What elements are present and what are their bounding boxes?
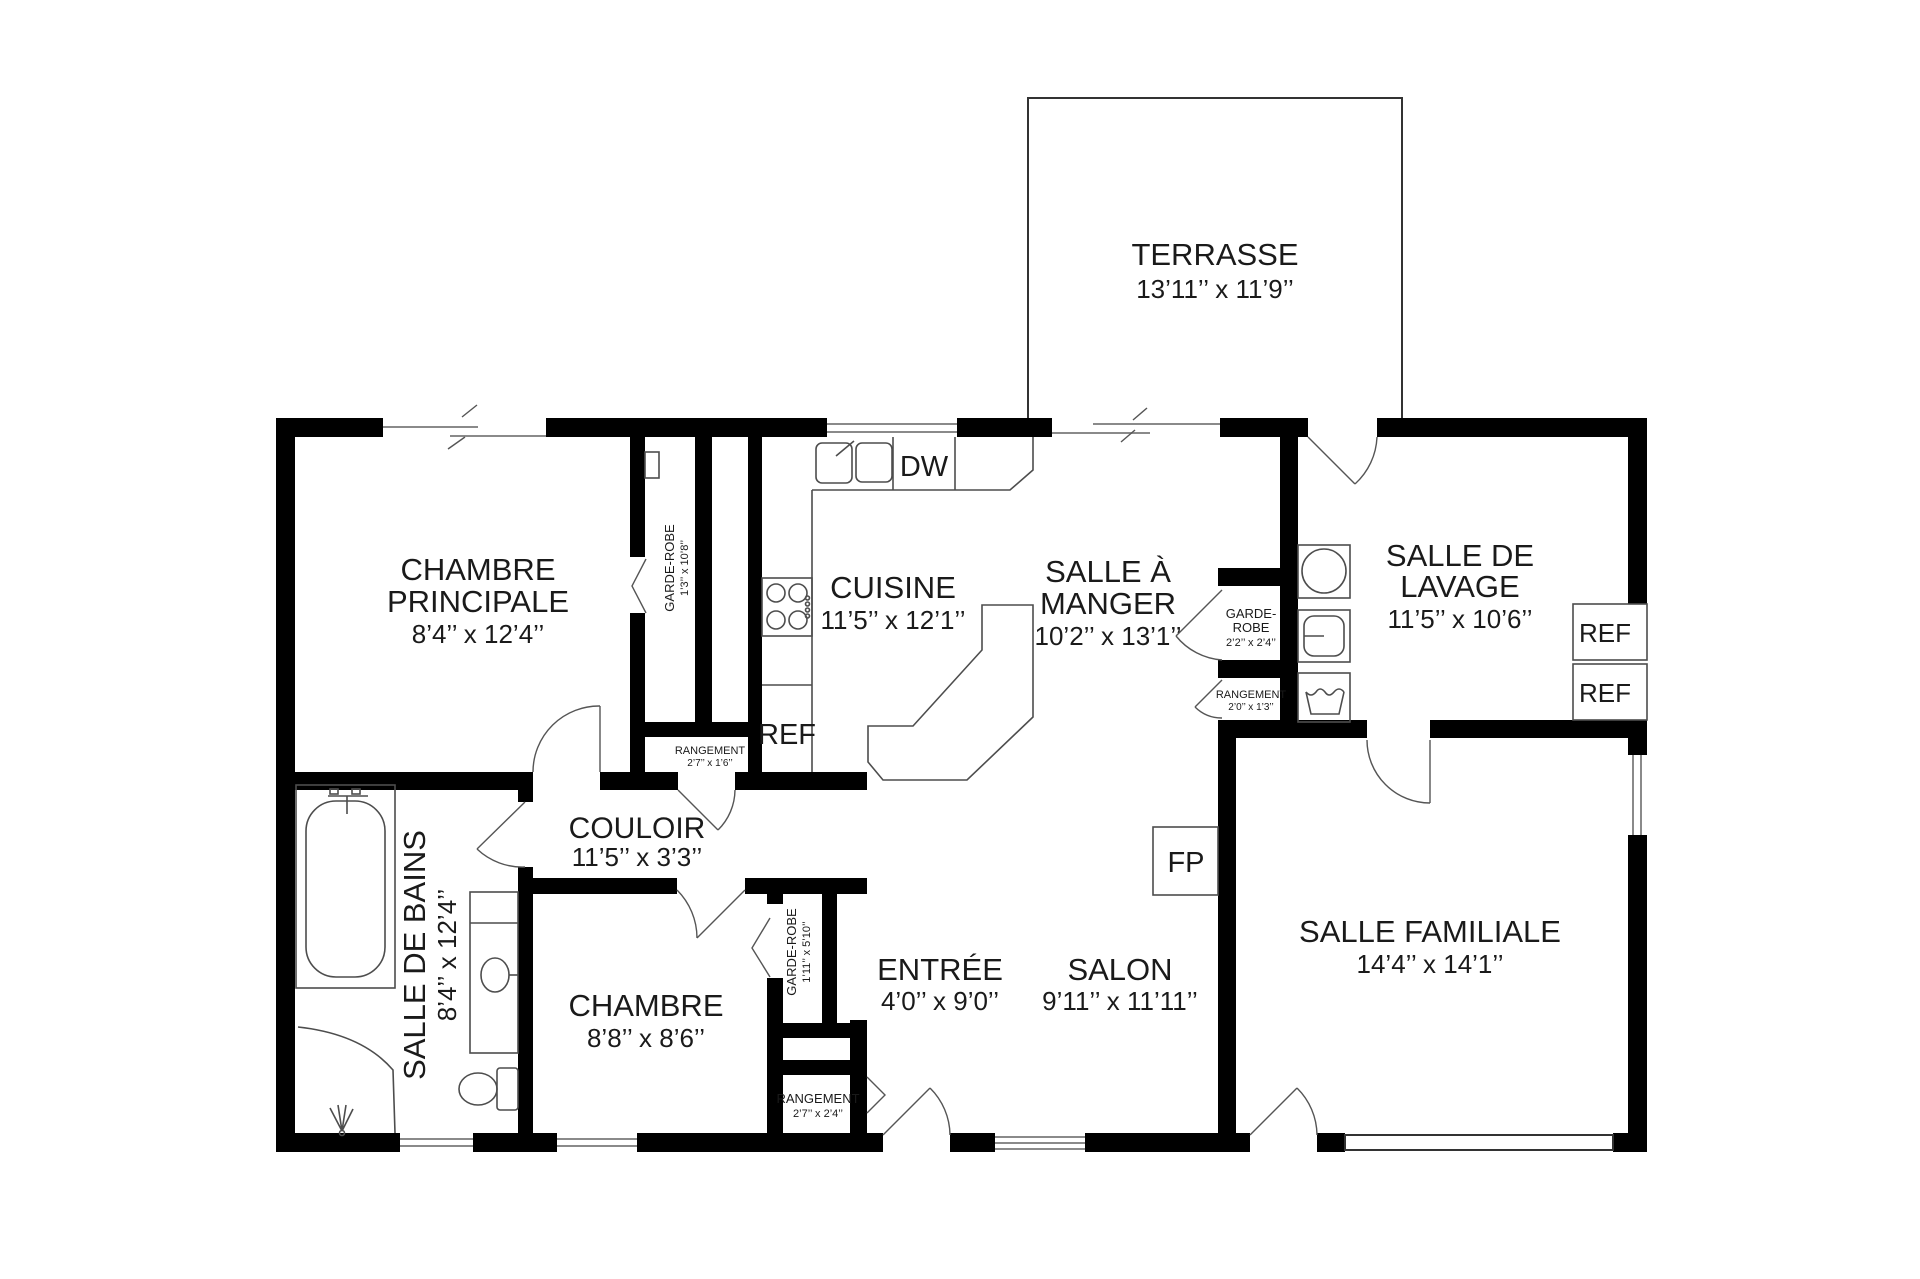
room-dims: 9’11’’ x 11’11’’ — [1042, 986, 1198, 1016]
room-name: LAVAGE — [1400, 569, 1519, 604]
wall-segment — [767, 890, 783, 904]
closet-shelf-notch — [645, 452, 659, 478]
closet-dims: 2’2’’ x 2’4’’ — [1226, 637, 1276, 649]
wall-segment — [600, 772, 678, 790]
wall-segment — [950, 1133, 995, 1152]
closet-label-garde-robe-manger: GARDE- ROBE 2’2’’ x 2’4’’ — [1226, 606, 1277, 649]
window-kitchen — [827, 424, 957, 432]
refrigerator-2-label: REF — [1579, 678, 1631, 708]
wall-segment — [782, 1060, 850, 1075]
room-label-salle-familiale: SALLE FAMILIALE 14’4’’ x 14’1’’ — [1299, 914, 1561, 979]
wall-segment — [735, 772, 867, 790]
room-labels: CHAMBRE PRINCIPALE 8’4’’ x 12’4’’ CUISIN… — [387, 538, 1561, 1080]
refrigerator-kitchen: REF — [758, 719, 816, 751]
wall-segment — [1085, 1133, 1250, 1152]
room-dims: 11’5’’ x 12’1’’ — [820, 605, 965, 635]
wall-segment — [630, 437, 645, 557]
toilet — [459, 1068, 518, 1110]
closet-dims: 2’0’’ x 1’3’’ — [1228, 702, 1273, 713]
closet-dims: 1’3’’ x 10’8’’ — [679, 540, 691, 596]
refrigerator-kitchen-label: REF — [758, 719, 816, 751]
dishwasher: DW — [893, 437, 955, 490]
bifold-icon-garde-robe-cuisine — [632, 559, 646, 613]
room-label-salon: SALON 9’11’’ x 11’11’’ — [1042, 952, 1198, 1016]
room-dims: 10’2’’ x 13’1’’ — [1035, 621, 1182, 651]
window-family-room-side — [1633, 755, 1641, 835]
closet-label-rangement-couloir: RANGEMENT 2’7’’ x 1’6’’ — [675, 745, 746, 769]
refrigerator-1: REF — [1573, 604, 1647, 660]
wall-segment — [957, 418, 1052, 437]
wall-segment — [276, 418, 295, 1152]
closet-name: GARDE-ROBE — [784, 908, 799, 996]
window-living-room — [995, 1137, 1085, 1149]
stove — [762, 578, 812, 636]
bathtub — [296, 785, 395, 988]
wall-segment — [546, 418, 827, 437]
closet-name: RANGEMENT — [1216, 689, 1287, 701]
shower-head-icon — [330, 1105, 353, 1136]
room-dims: 8’4’’ x 12’4’’ — [412, 619, 545, 649]
wall-segment — [473, 1133, 557, 1152]
room-name: SALLE À — [1045, 554, 1171, 589]
room-name: CHAMBRE — [568, 988, 723, 1023]
room-label-salle-a-manger: SALLE À MANGER 10’2’’ x 13’1’’ — [1035, 554, 1182, 651]
wall-segment — [695, 437, 712, 722]
closet-label-rangement-entree: RANGEMENT 2’7’’ x 2’4’’ — [776, 1091, 859, 1120]
closet-name: RANGEMENT — [776, 1091, 859, 1106]
shower — [298, 1027, 395, 1136]
closet-name: GARDE-ROBE — [662, 524, 677, 612]
door-front-entry — [883, 1088, 950, 1135]
window-bathroom — [400, 1139, 473, 1146]
wall-segment — [767, 1038, 783, 1133]
room-dims: 8’8’’ x 8’6’’ — [587, 1023, 705, 1053]
kitchen-sink — [816, 441, 892, 483]
vanity-sink — [470, 892, 518, 1053]
wall-segment — [1218, 660, 1280, 678]
room-name: ENTRÉE — [877, 952, 1003, 987]
door-master-bedroom — [533, 706, 600, 772]
refrigerator-1-label: REF — [1579, 618, 1631, 648]
closet-dims: 2’7’’ x 1’6’’ — [687, 758, 732, 769]
fireplace-label: FP — [1167, 847, 1204, 879]
dishwasher-label: DW — [900, 451, 949, 483]
door-terrace-laundry — [1308, 437, 1377, 484]
floor-plan-page: TERRASSE 13’11’’ x 11’9’’ — [0, 0, 1920, 1279]
wall-segment — [1218, 568, 1280, 586]
laundry-sink — [1298, 610, 1350, 662]
wall-segment — [1218, 738, 1236, 1133]
room-name: PRINCIPALE — [387, 584, 569, 619]
wall-segment — [630, 722, 762, 737]
room-dims: 14’4’’ x 14’1’’ — [1357, 949, 1504, 979]
room-label-entree: ENTRÉE 4’0’’ x 9’0’’ — [877, 952, 1003, 1016]
room-label-chambre: CHAMBRE 8’8’’ x 8’6’’ — [568, 988, 723, 1053]
room-name: SALLE DE BAINS — [397, 830, 432, 1080]
wall-segment — [637, 1133, 883, 1152]
wall-segment — [1628, 835, 1647, 1152]
room-dims-terrasse: 13’11’’ x 11’9’’ — [1136, 274, 1294, 304]
door-bedroom2 — [677, 890, 745, 938]
wall-segment — [1220, 418, 1308, 437]
wall-segment — [850, 1020, 867, 1133]
room-name: SALLE FAMILIALE — [1299, 914, 1561, 949]
room-name: SALON — [1067, 952, 1172, 987]
wall-segment — [518, 867, 533, 1152]
wall-segment — [1430, 720, 1647, 738]
room-label-couloir: COULOIR 11’5’’ x 3’3’’ — [569, 812, 706, 872]
room-label-cuisine: CUISINE 11’5’’ x 12’1’’ — [820, 570, 965, 635]
closet-label-rangement-manger: RANGEMENT 2’0’’ x 1’3’’ — [1216, 689, 1287, 713]
wall-segment — [1377, 418, 1647, 437]
closet-label-garde-robe-cuisine: GARDE-ROBE 1’3’’ x 10’8’’ — [662, 524, 691, 612]
terrasse-area: TERRASSE 13’11’’ x 11’9’’ — [1028, 98, 1402, 418]
window-sliding-bedroom — [383, 405, 546, 449]
room-dims: 11’5’’ x 3’3’’ — [572, 842, 703, 872]
closet-name: GARDE- — [1226, 606, 1277, 621]
room-label-salle-de-lavage: SALLE DE LAVAGE 11’5’’ x 10’6’’ — [1386, 538, 1534, 634]
door-garde-robe-manger — [1176, 590, 1222, 660]
room-name: COULOIR — [569, 812, 706, 845]
bifold-icon-garde-robe-chambre — [752, 918, 770, 977]
room-name: MANGER — [1040, 586, 1176, 621]
room-name: CHAMBRE — [400, 552, 555, 587]
wall-segment — [295, 772, 533, 790]
door-laundry-family — [1367, 740, 1430, 803]
room-name: SALLE DE — [1386, 538, 1534, 573]
room-label-terrasse: TERRASSE — [1131, 237, 1298, 272]
room-dims: 4’0’’ x 9’0’’ — [881, 986, 999, 1016]
bifold-icon-rangement-entree — [867, 1077, 885, 1113]
room-dims: 8’4’’ x 12’4’’ — [432, 889, 462, 1022]
room-dims: 11’5’’ x 10’6’’ — [1387, 604, 1532, 634]
wall-segment — [533, 878, 677, 894]
wall-segment — [630, 613, 645, 772]
floor-plan-drawing: TERRASSE 13’11’’ x 11’9’’ — [0, 0, 1920, 1279]
closet-dims: 2’7’’ x 2’4’’ — [793, 1108, 843, 1120]
windows — [383, 405, 1641, 1150]
window-family-room — [1345, 1135, 1613, 1150]
washer — [1298, 545, 1350, 598]
wall-segment — [822, 884, 837, 1038]
closet-name: ROBE — [1233, 620, 1270, 635]
refrigerator-2: REF — [1573, 664, 1647, 720]
wall-segment — [1317, 1133, 1345, 1152]
wall-segment — [1628, 418, 1647, 604]
closet-name: RANGEMENT — [675, 745, 746, 757]
fireplace: FP — [1153, 827, 1218, 895]
wall-segment — [745, 878, 867, 894]
closet-label-garde-robe-chambre: GARDE-ROBE 1’11’’ x 5’10’’ — [784, 908, 813, 996]
room-label-chambre-principale: CHAMBRE PRINCIPALE 8’4’’ x 12’4’’ — [387, 552, 569, 649]
closet-dims: 1’11’’ x 5’10’’ — [801, 921, 813, 982]
door-family-room-exterior — [1250, 1088, 1317, 1135]
wall-segment — [518, 788, 533, 802]
door-bathroom — [477, 802, 525, 867]
laundry-tub — [1298, 673, 1350, 722]
window-bedroom2 — [557, 1139, 637, 1146]
room-label-salle-de-bains: SALLE DE BAINS 8’4’’ x 12’4’’ — [397, 830, 462, 1080]
room-name: CUISINE — [830, 570, 956, 605]
